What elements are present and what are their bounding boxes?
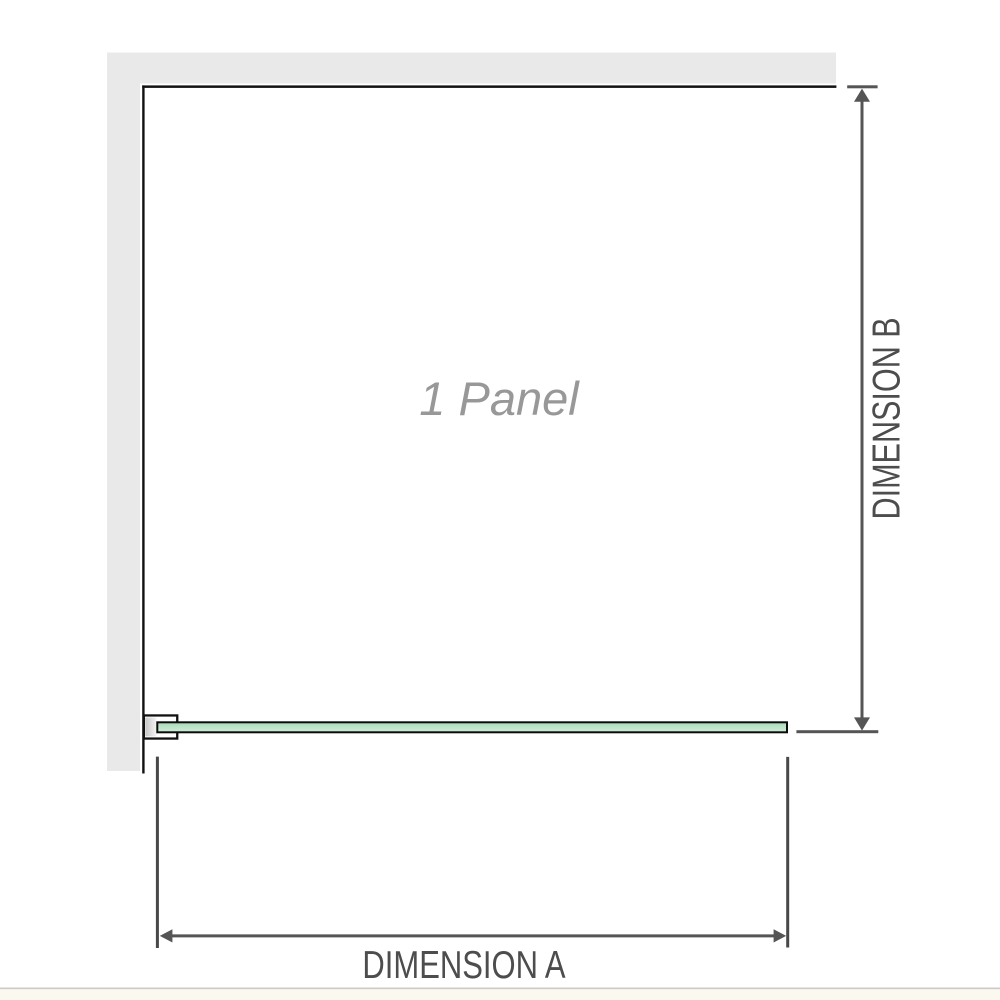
svg-text:1 Panel: 1 Panel [419,372,580,425]
svg-text:DIMENSION A: DIMENSION A [362,944,566,987]
svg-text:DIMENSION B: DIMENSION B [865,317,908,519]
